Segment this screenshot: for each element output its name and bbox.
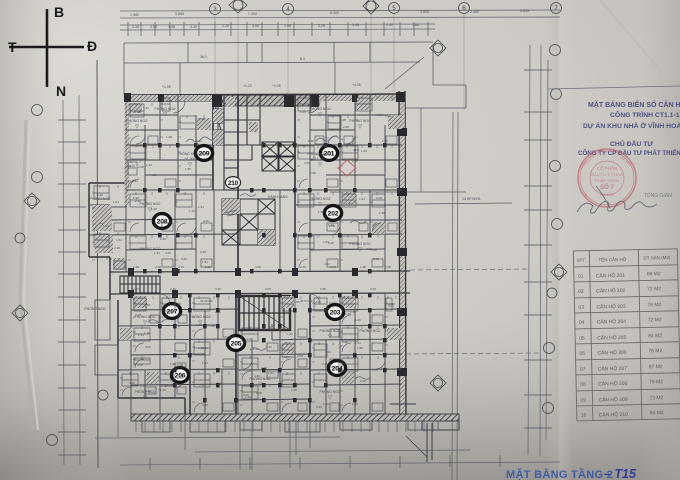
svg-text:3.30: 3.30 — [329, 301, 335, 305]
svg-text:207: 207 — [167, 309, 178, 316]
svg-text:CĂN HỘ 207: CĂN HỘ 207 — [598, 365, 628, 373]
svg-text:1.98: 1.98 — [185, 167, 191, 171]
svg-text:202: 202 — [328, 211, 339, 218]
svg-text:2.08: 2.08 — [360, 379, 366, 383]
svg-text:3.30: 3.30 — [266, 345, 272, 349]
svg-text:2.28: 2.28 — [177, 363, 183, 367]
svg-text:1.98: 1.98 — [175, 302, 181, 306]
svg-text:Đ: Đ — [87, 38, 97, 54]
svg-text:06: 06 — [579, 351, 585, 357]
svg-text:36.0: 36.0 — [200, 55, 207, 59]
svg-text:1.20: 1.20 — [323, 402, 329, 406]
svg-text:1.64: 1.64 — [359, 197, 365, 201]
svg-text:2.08: 2.08 — [150, 25, 157, 29]
svg-text:1.98: 1.98 — [160, 237, 166, 241]
svg-text:1.98: 1.98 — [168, 25, 175, 29]
svg-text:+1.20: +1.20 — [243, 84, 252, 88]
svg-text:1.98: 1.98 — [209, 324, 215, 328]
svg-text:1.20: 1.20 — [346, 202, 352, 206]
svg-text:▽: ▽ — [143, 395, 147, 401]
svg-text:2.28: 2.28 — [200, 250, 206, 254]
svg-text:7.200: 7.200 — [248, 12, 257, 16]
svg-text:DỰ ÁN KHU NHÀ Ở VĨNH HOÀNG: DỰ ÁN KHU NHÀ Ở VĨNH HOÀNG — [583, 121, 680, 130]
svg-text:3.30: 3.30 — [196, 139, 202, 143]
svg-text:203: 203 — [330, 310, 341, 317]
svg-text:2.28: 2.28 — [144, 303, 150, 307]
svg-text:CĂN HỘ 209: CĂN HỘ 209 — [598, 396, 628, 404]
svg-text:2.28: 2.28 — [315, 300, 321, 304]
svg-text:2.08: 2.08 — [135, 313, 141, 317]
svg-text:3.30: 3.30 — [243, 393, 249, 397]
svg-text:▽: ▽ — [328, 395, 332, 401]
svg-text:1.34: 1.34 — [160, 388, 166, 392]
svg-text:2.28: 2.28 — [343, 125, 349, 129]
svg-text:CÔNG TRÌNH CT1.1-1A: CÔNG TRÌNH CT1.1-1A — [610, 110, 680, 119]
svg-text:PHÒNG NGỦ: PHÒNG NGỦ — [350, 241, 371, 246]
svg-text:07: 07 — [580, 367, 586, 373]
svg-text:4.20: 4.20 — [151, 173, 157, 177]
svg-text:4.20: 4.20 — [165, 251, 171, 255]
svg-text:+1.200: +1.200 — [185, 157, 196, 161]
svg-text:03: 03 — [578, 305, 584, 311]
svg-text:2.08: 2.08 — [205, 265, 211, 269]
svg-text:09: 09 — [580, 398, 586, 404]
svg-text:3.30: 3.30 — [316, 405, 322, 409]
svg-text:3.06: 3.06 — [129, 164, 135, 168]
svg-text:▽: ▽ — [143, 320, 147, 326]
svg-text:72 M2: 72 M2 — [648, 317, 662, 323]
svg-text:N: N — [56, 83, 66, 99]
svg-text:3.06: 3.06 — [353, 148, 359, 152]
svg-text:05: 05 — [579, 336, 585, 342]
svg-text:CĂN HỘ 203: CĂN HỘ 203 — [596, 303, 626, 311]
svg-text:1.98: 1.98 — [320, 287, 326, 291]
svg-text:PHÒNG NGỦ: PHÒNG NGỦ — [250, 376, 271, 381]
svg-text:65 M2: 65 M2 — [650, 410, 664, 416]
svg-text:4.20: 4.20 — [202, 403, 208, 407]
svg-text:3.600: 3.600 — [420, 10, 429, 14]
svg-text:▽: ▽ — [318, 162, 322, 168]
svg-text:PHÒNG NGỦ: PHÒNG NGỦ — [190, 314, 211, 319]
svg-text:1.64: 1.64 — [103, 224, 109, 228]
svg-text:2.28: 2.28 — [318, 153, 324, 157]
svg-text:+1.05: +1.05 — [162, 85, 171, 89]
svg-text:2.40: 2.40 — [135, 199, 141, 203]
svg-text:▽: ▽ — [135, 124, 139, 130]
svg-text:2.28: 2.28 — [340, 118, 346, 122]
svg-text:2.08: 2.08 — [291, 388, 297, 392]
svg-text:2.40: 2.40 — [106, 257, 112, 261]
svg-text:1.98: 1.98 — [318, 210, 324, 214]
svg-text:4.20: 4.20 — [97, 193, 103, 197]
svg-text:2.28: 2.28 — [370, 287, 376, 291]
svg-text:1.20: 1.20 — [355, 318, 361, 322]
svg-text:2.28: 2.28 — [373, 257, 379, 261]
svg-text:3.30: 3.30 — [178, 265, 184, 269]
svg-text:▽: ▽ — [258, 382, 262, 388]
svg-text:4.20: 4.20 — [304, 161, 310, 165]
svg-text:8.4: 8.4 — [300, 57, 305, 61]
svg-text:14 5P M.RL: 14 5P M.RL — [462, 197, 481, 201]
svg-text:MẶT BẰNG TẦNG 2: MẶT BẰNG TẦNG 2 — [506, 468, 613, 480]
svg-text:1.64: 1.64 — [113, 200, 119, 204]
svg-text:1.98: 1.98 — [166, 135, 172, 139]
svg-text:1.64: 1.64 — [412, 23, 419, 27]
svg-text:72 M2: 72 M2 — [647, 286, 661, 292]
svg-text:CĂN HỘ 205: CĂN HỘ 205 — [597, 334, 627, 342]
svg-text:1.20: 1.20 — [300, 110, 306, 114]
svg-text:1.34: 1.34 — [253, 347, 259, 351]
svg-text:2.28: 2.28 — [371, 248, 377, 252]
svg-text:3.06: 3.06 — [388, 304, 394, 308]
svg-text:1.98: 1.98 — [360, 265, 366, 269]
svg-text:▽: ▽ — [163, 112, 167, 118]
svg-text:1.98: 1.98 — [133, 265, 139, 269]
svg-text:PHÒNG NGỦ: PHÒNG NGỦ — [127, 118, 148, 123]
svg-text:1.98: 1.98 — [135, 110, 141, 114]
svg-text:3.665: 3.665 — [175, 12, 184, 16]
svg-text:84 M2: 84 M2 — [648, 333, 662, 339]
svg-text:▽: ▽ — [318, 202, 322, 208]
svg-text:+1.200: +1.200 — [315, 157, 326, 161]
svg-text:PHÒNG KHÁCH: PHÒNG KHÁCH — [177, 151, 203, 156]
svg-text:73 M2: 73 M2 — [649, 395, 663, 401]
svg-text:CĂN HỘ 204: CĂN HỘ 204 — [597, 318, 627, 326]
svg-text:2.08: 2.08 — [352, 159, 358, 163]
svg-text:2.28: 2.28 — [318, 24, 325, 28]
svg-text:DT SÀN (M2): DT SÀN (M2) — [643, 254, 671, 261]
svg-text:4.20: 4.20 — [203, 219, 209, 223]
svg-text:SỐ 7: SỐ 7 — [600, 184, 614, 191]
svg-text:1.34: 1.34 — [268, 371, 274, 375]
svg-text:04: 04 — [579, 320, 585, 326]
svg-text:1.20: 1.20 — [361, 149, 367, 153]
svg-text:+1.05: +1.05 — [272, 84, 281, 88]
svg-text:205: 205 — [231, 341, 242, 348]
svg-text:1.34: 1.34 — [202, 260, 208, 264]
svg-text:2.08: 2.08 — [265, 287, 271, 291]
svg-text:1.98: 1.98 — [352, 23, 359, 27]
svg-text:TỔNG GIÁM: TỔNG GIÁM — [644, 192, 673, 199]
svg-text:1.20: 1.20 — [350, 310, 356, 314]
svg-text:2.40: 2.40 — [386, 23, 393, 27]
svg-text:HÀNH LANG: HÀNH LANG — [268, 195, 288, 199]
svg-text:4.20: 4.20 — [129, 381, 135, 385]
svg-text:1.980: 1.980 — [130, 13, 139, 17]
svg-text:– T15: – T15 — [604, 467, 637, 480]
svg-text:PHÁT TRIỂN: PHÁT TRIỂN — [595, 178, 619, 183]
svg-text:CĂN HỘ 202: CĂN HỘ 202 — [596, 287, 626, 295]
svg-text:2.28: 2.28 — [385, 265, 391, 269]
svg-text:2.28: 2.28 — [372, 368, 378, 372]
svg-text:4.20: 4.20 — [255, 265, 261, 269]
svg-text:4.20: 4.20 — [283, 355, 289, 359]
svg-text:1.64: 1.64 — [198, 346, 204, 350]
svg-text:3.06: 3.06 — [366, 247, 372, 251]
svg-text:76 M2: 76 M2 — [648, 348, 662, 354]
svg-text:CĂN HỘ 210: CĂN HỘ 210 — [599, 411, 629, 419]
svg-text:1.34: 1.34 — [143, 106, 149, 110]
svg-text:CĂN HỘ 201: CĂN HỘ 201 — [596, 272, 626, 280]
svg-text:4.20: 4.20 — [140, 384, 146, 388]
svg-text:3.30: 3.30 — [177, 376, 183, 380]
svg-text:3.645: 3.645 — [520, 9, 529, 13]
svg-text:42.20 M2: 42.20 M2 — [200, 299, 213, 303]
svg-text:4.20: 4.20 — [254, 374, 260, 378]
svg-text:PHÒNG NGỦ: PHÒNG NGỦ — [310, 106, 331, 111]
svg-text:2.28: 2.28 — [247, 337, 253, 341]
svg-text:2.28: 2.28 — [322, 362, 328, 366]
svg-text:3.30: 3.30 — [199, 117, 205, 121]
svg-text:CỔ PHẦN: CỔ PHẦN — [597, 165, 618, 171]
svg-text:B: B — [54, 4, 64, 20]
svg-text:1.64: 1.64 — [202, 361, 208, 365]
svg-text:210: 210 — [228, 180, 239, 187]
svg-text:1.64: 1.64 — [116, 238, 122, 242]
svg-text:1.98: 1.98 — [379, 211, 385, 215]
svg-text:01: 01 — [578, 274, 584, 280]
svg-text:2.40: 2.40 — [170, 287, 176, 291]
svg-text:PHÒNG NGỦ: PHÒNG NGỦ — [155, 106, 176, 111]
svg-text:2.40: 2.40 — [300, 265, 306, 269]
svg-text:CĂN HỘ 208: CĂN HỘ 208 — [598, 380, 628, 388]
svg-text:2.28: 2.28 — [222, 24, 229, 28]
svg-text:1.98: 1.98 — [357, 346, 363, 350]
svg-text:79 M2: 79 M2 — [649, 379, 663, 385]
svg-text:3.30: 3.30 — [190, 25, 197, 29]
svg-text:68 M2: 68 M2 — [647, 271, 661, 277]
svg-text:3.06: 3.06 — [330, 265, 336, 269]
svg-text:3.06: 3.06 — [145, 345, 151, 349]
svg-text:02: 02 — [578, 289, 584, 295]
svg-text:10: 10 — [581, 413, 587, 419]
svg-text:1.98: 1.98 — [170, 362, 176, 366]
svg-text:PHÒNG NGỦ: PHÒNG NGỦ — [350, 118, 371, 123]
svg-text:3.06: 3.06 — [252, 24, 259, 28]
svg-text:CĂN HỘ 206: CĂN HỘ 206 — [597, 349, 627, 357]
svg-text:▽: ▽ — [358, 247, 362, 253]
svg-text:STT: STT — [576, 258, 585, 263]
svg-text:3.06: 3.06 — [377, 113, 383, 117]
svg-text:ĐẦU TƯ P.T NHÀ: ĐẦU TƯ P.T NHÀ — [591, 172, 623, 177]
svg-text:2.08: 2.08 — [297, 354, 303, 358]
svg-text:1.20: 1.20 — [151, 207, 157, 211]
svg-text:2.08: 2.08 — [376, 196, 382, 200]
svg-text:▽: ▽ — [318, 112, 322, 118]
svg-text:87 M2: 87 M2 — [649, 364, 663, 370]
svg-text:T: T — [8, 39, 17, 55]
svg-text:PHÒNG NGỦ: PHÒNG NGỦ — [140, 201, 161, 206]
svg-text:2.400: 2.400 — [470, 10, 479, 14]
svg-text:2.08: 2.08 — [256, 391, 262, 395]
svg-text:2.28: 2.28 — [155, 265, 161, 269]
svg-text:1.20: 1.20 — [287, 332, 293, 336]
svg-text:PHÒNG NGỦ: PHÒNG NGỦ — [320, 389, 341, 394]
svg-text:3.30: 3.30 — [215, 287, 221, 291]
svg-text:1.64: 1.64 — [385, 114, 391, 118]
svg-text:08: 08 — [580, 382, 586, 388]
svg-text:8.400: 8.400 — [330, 11, 339, 15]
svg-text:1.34: 1.34 — [355, 341, 361, 345]
svg-text:4.20: 4.20 — [328, 241, 334, 245]
svg-text:1.20: 1.20 — [342, 340, 348, 344]
svg-text:1.34: 1.34 — [325, 350, 331, 354]
svg-text:1.98: 1.98 — [196, 323, 202, 327]
svg-text:76 M2: 76 M2 — [647, 302, 661, 308]
svg-text:PHÒNG NGỦ: PHÒNG NGỦ — [85, 306, 106, 311]
svg-text:4.20: 4.20 — [181, 257, 187, 261]
svg-text:1.34: 1.34 — [146, 163, 152, 167]
svg-text:2.08: 2.08 — [138, 165, 144, 169]
svg-text:3.06: 3.06 — [145, 389, 151, 393]
svg-text:1.34: 1.34 — [198, 205, 204, 209]
svg-text:2.08: 2.08 — [352, 402, 358, 406]
svg-text:+4.05: +4.05 — [352, 83, 361, 87]
svg-text:1.34: 1.34 — [328, 223, 334, 227]
svg-text:1.20: 1.20 — [144, 331, 150, 335]
svg-text:1.98: 1.98 — [310, 171, 316, 175]
svg-text:2.40: 2.40 — [308, 139, 314, 143]
svg-text:1.34: 1.34 — [132, 25, 139, 29]
svg-text:2.28: 2.28 — [114, 246, 120, 250]
svg-text:2.28: 2.28 — [382, 139, 388, 143]
svg-text:1.34: 1.34 — [189, 209, 195, 213]
svg-text:2.08: 2.08 — [137, 363, 143, 367]
svg-text:1.34: 1.34 — [154, 251, 160, 255]
svg-text:40.57 M2: 40.57 M2 — [300, 299, 313, 303]
svg-text:1.98: 1.98 — [284, 24, 291, 28]
svg-text:1.34: 1.34 — [133, 287, 139, 291]
svg-text:▽: ▽ — [358, 124, 362, 130]
svg-text:1.98: 1.98 — [166, 99, 172, 103]
svg-text:2.28: 2.28 — [199, 383, 205, 387]
